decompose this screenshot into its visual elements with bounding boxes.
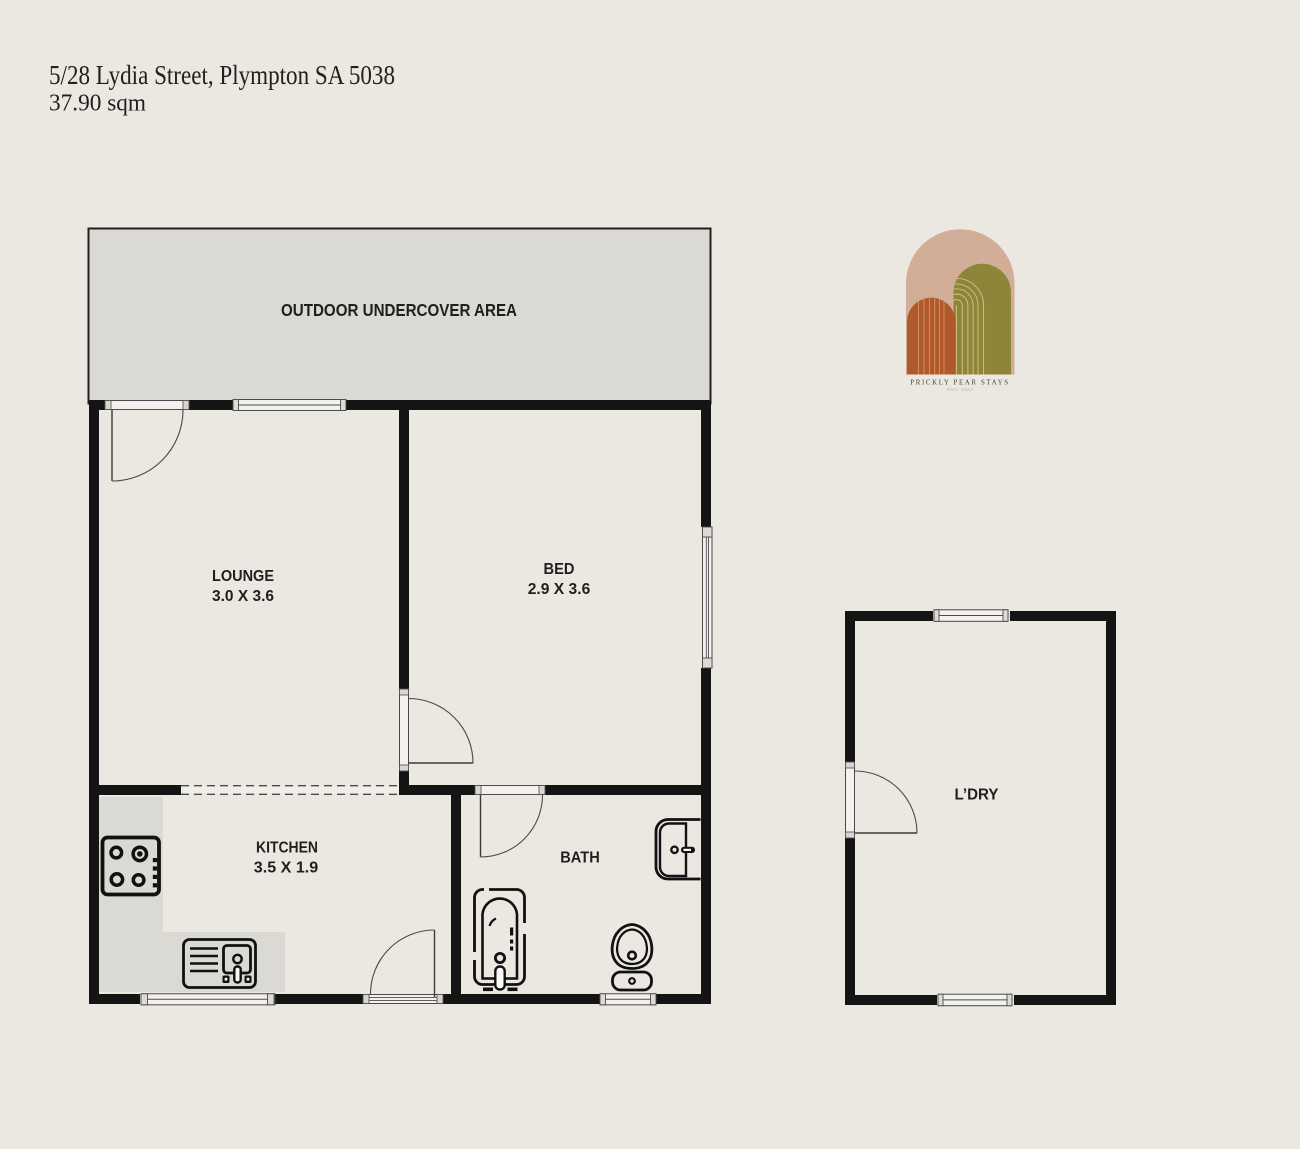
svg-text:PRICKLY PEAR STAYS: PRICKLY PEAR STAYS: [910, 380, 1009, 387]
svg-text:BED: BED: [544, 561, 575, 578]
svg-text:EST. 2022: EST. 2022: [947, 387, 973, 392]
svg-text:OUTDOOR UNDERCOVER AREA: OUTDOOR UNDERCOVER AREA: [281, 300, 517, 320]
svg-text:2.9 X 3.6: 2.9 X 3.6: [528, 581, 591, 598]
svg-text:5/28 Lydia Street, Plympton SA: 5/28 Lydia Street, Plympton SA 5038: [49, 60, 395, 90]
svg-text:3.5 X 1.9: 3.5 X 1.9: [254, 860, 319, 877]
svg-text:KITCHEN: KITCHEN: [256, 840, 318, 857]
svg-text:37.90 sqm: 37.90 sqm: [49, 90, 146, 117]
svg-text:BATH: BATH: [560, 850, 600, 867]
svg-text:LOUNGE: LOUNGE: [212, 568, 274, 585]
svg-text:3.0 X 3.6: 3.0 X 3.6: [212, 588, 274, 605]
svg-text:L’DRY: L’DRY: [955, 787, 999, 804]
